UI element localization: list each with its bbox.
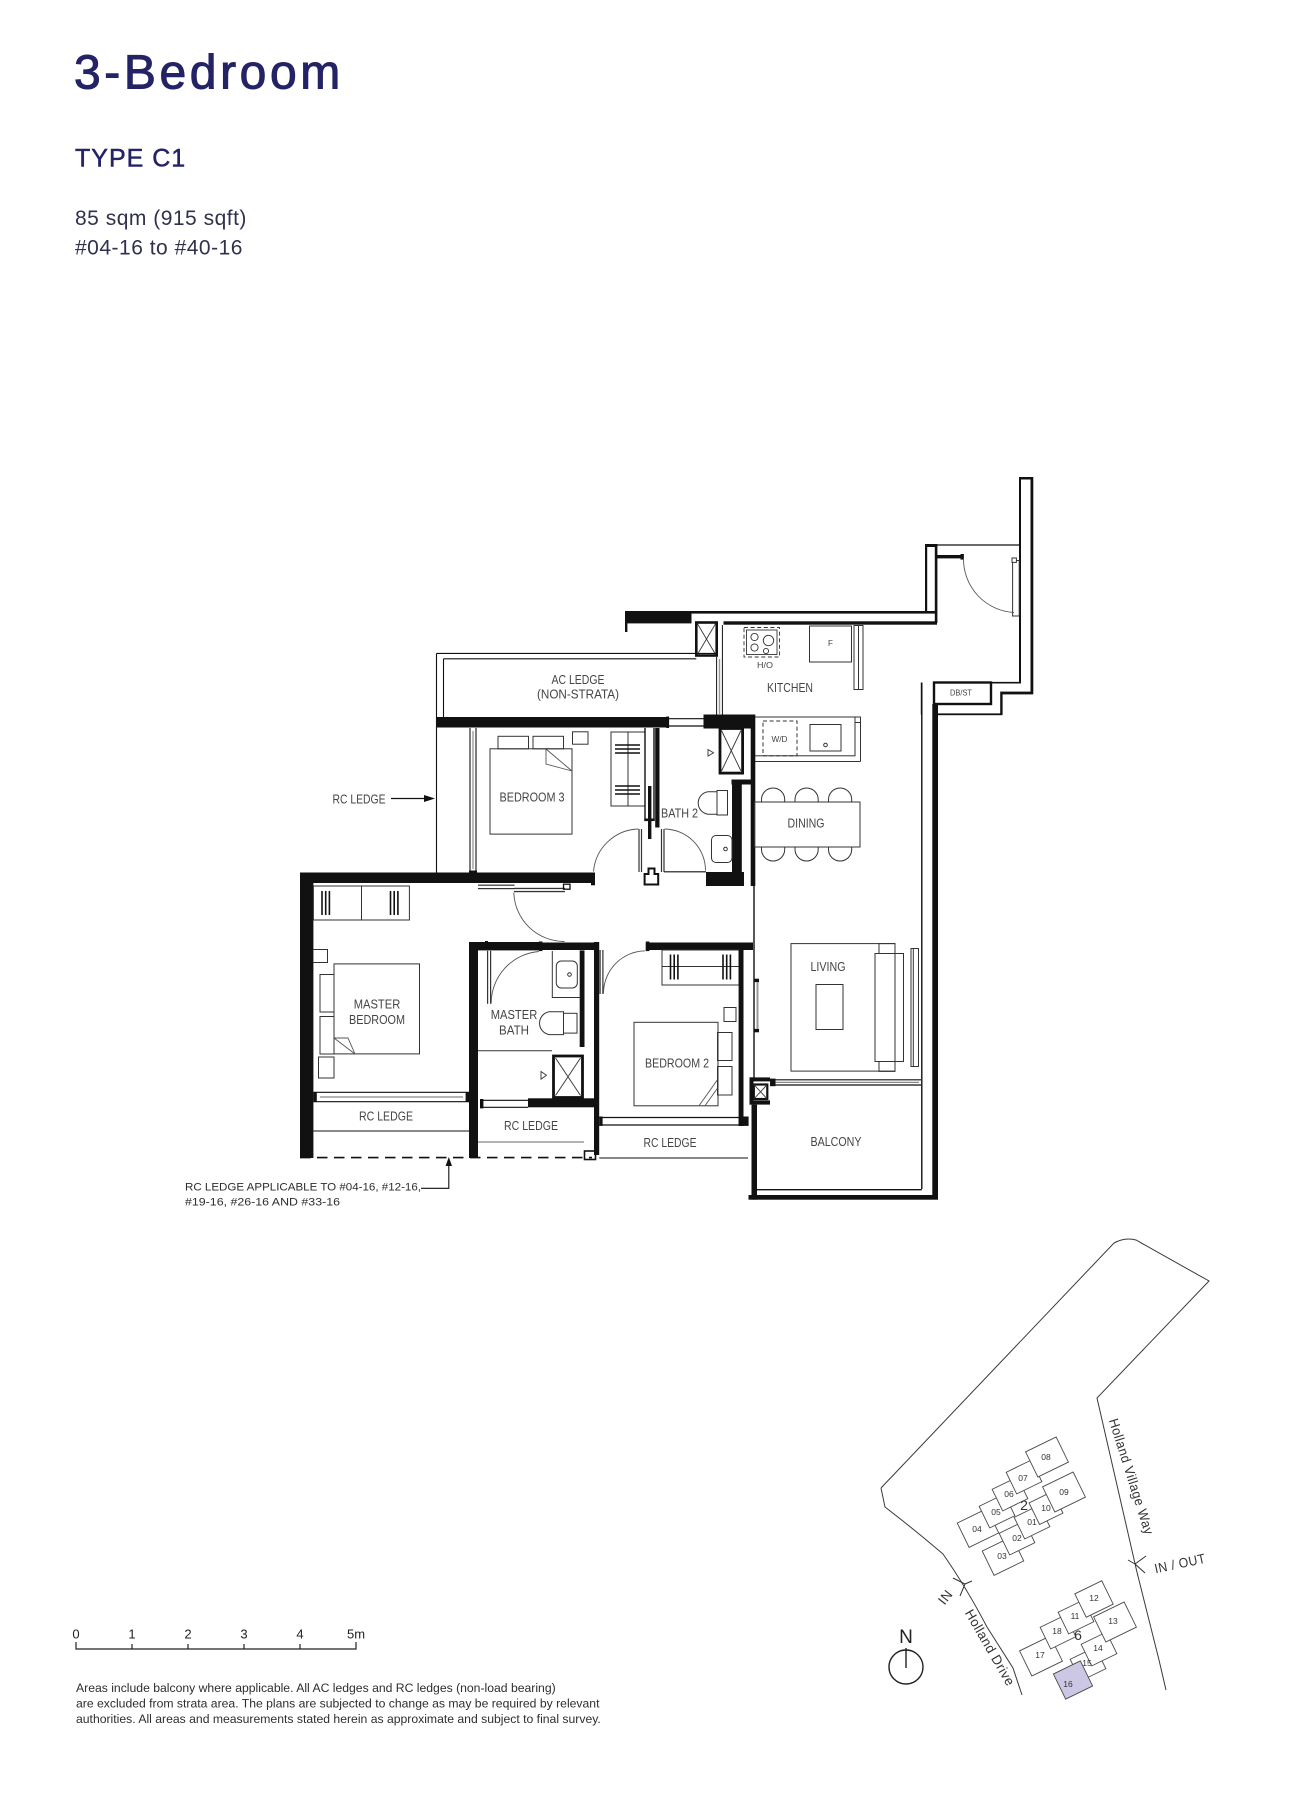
svg-text:BATH: BATH (499, 1023, 529, 1038)
svg-text:09: 09 (1059, 1487, 1069, 1497)
svg-text:6: 6 (1074, 1627, 1082, 1643)
svg-text:TYPE C1: TYPE C1 (75, 145, 186, 173)
svg-text:BEDROOM: BEDROOM (349, 1012, 405, 1027)
svg-text:17: 17 (1035, 1650, 1045, 1660)
svg-text:F: F (828, 639, 833, 648)
svg-text:IN: IN (935, 1587, 956, 1608)
svg-text:15: 15 (1082, 1658, 1092, 1668)
svg-text:1: 1 (128, 1627, 135, 1642)
svg-text:Areas include balcony where ap: Areas include balcony where applicable. … (76, 1681, 556, 1695)
svg-text:#04-16 to #40-16: #04-16 to #40-16 (75, 237, 243, 260)
svg-text:11: 11 (1071, 1611, 1080, 1621)
svg-text:07: 07 (1018, 1473, 1028, 1483)
svg-text:(NON-STRATA): (NON-STRATA) (537, 687, 619, 702)
svg-text:BEDROOM 3: BEDROOM 3 (500, 790, 565, 805)
svg-text:3-Bedroom: 3-Bedroom (74, 47, 344, 100)
svg-text:LIVING: LIVING (811, 959, 846, 974)
svg-text:03: 03 (997, 1551, 1007, 1561)
svg-text:are excluded from strata area.: are excluded from strata area. The plans… (76, 1697, 600, 1711)
svg-text:DINING: DINING (788, 816, 825, 831)
svg-text:13: 13 (1108, 1616, 1118, 1626)
svg-text:4: 4 (296, 1627, 303, 1642)
svg-text:12: 12 (1089, 1593, 1099, 1603)
svg-text:85 sqm (915 sqft): 85 sqm (915 sqft) (75, 207, 247, 230)
svg-text:18: 18 (1052, 1626, 1062, 1636)
svg-text:authorities. All areas and mea: authorities. All areas and measurements … (76, 1712, 601, 1726)
svg-text:N: N (899, 1627, 913, 1648)
svg-text:#19-16, #26-16 AND #33-16: #19-16, #26-16 AND #33-16 (185, 1197, 340, 1209)
svg-text:IN / OUT: IN / OUT (1153, 1551, 1207, 1576)
svg-text:2: 2 (1020, 1497, 1028, 1513)
svg-text:10: 10 (1041, 1503, 1051, 1513)
svg-text:06: 06 (1004, 1489, 1014, 1499)
svg-text:W/D: W/D (772, 735, 788, 744)
svg-text:01: 01 (1027, 1517, 1037, 1527)
svg-text:RC LEDGE: RC LEDGE (644, 1135, 697, 1150)
svg-text:DB/ST: DB/ST (950, 689, 972, 698)
svg-text:Holland Drive: Holland Drive (962, 1607, 1018, 1689)
svg-text:02: 02 (1012, 1533, 1022, 1543)
svg-text:BATH 2: BATH 2 (661, 806, 698, 821)
svg-text:RC LEDGE: RC LEDGE (333, 791, 386, 806)
svg-text:RC LEDGE APPLICABLE TO #04-16,: RC LEDGE APPLICABLE TO #04-16, #12-16, (185, 1182, 421, 1194)
svg-text:BEDROOM 2: BEDROOM 2 (645, 1055, 709, 1070)
svg-text:BALCONY: BALCONY (811, 1134, 862, 1149)
svg-text:16: 16 (1063, 1679, 1073, 1689)
svg-text:RC LEDGE: RC LEDGE (359, 1109, 413, 1124)
svg-text:5m: 5m (347, 1627, 365, 1642)
svg-text:KITCHEN: KITCHEN (767, 680, 813, 695)
svg-text:Holland Village Way: Holland Village Way (1106, 1417, 1157, 1537)
svg-text:0: 0 (72, 1627, 79, 1642)
svg-text:05: 05 (991, 1507, 1001, 1517)
svg-text:H/O: H/O (757, 661, 773, 670)
svg-text:14: 14 (1093, 1643, 1103, 1653)
svg-text:3: 3 (240, 1627, 247, 1642)
svg-text:04: 04 (972, 1524, 982, 1534)
svg-text:RC LEDGE: RC LEDGE (504, 1118, 558, 1133)
svg-text:2: 2 (184, 1627, 191, 1642)
svg-text:AC LEDGE: AC LEDGE (552, 672, 605, 687)
svg-text:08: 08 (1041, 1452, 1051, 1462)
svg-text:MASTER: MASTER (491, 1007, 538, 1022)
svg-text:MASTER: MASTER (354, 997, 401, 1012)
